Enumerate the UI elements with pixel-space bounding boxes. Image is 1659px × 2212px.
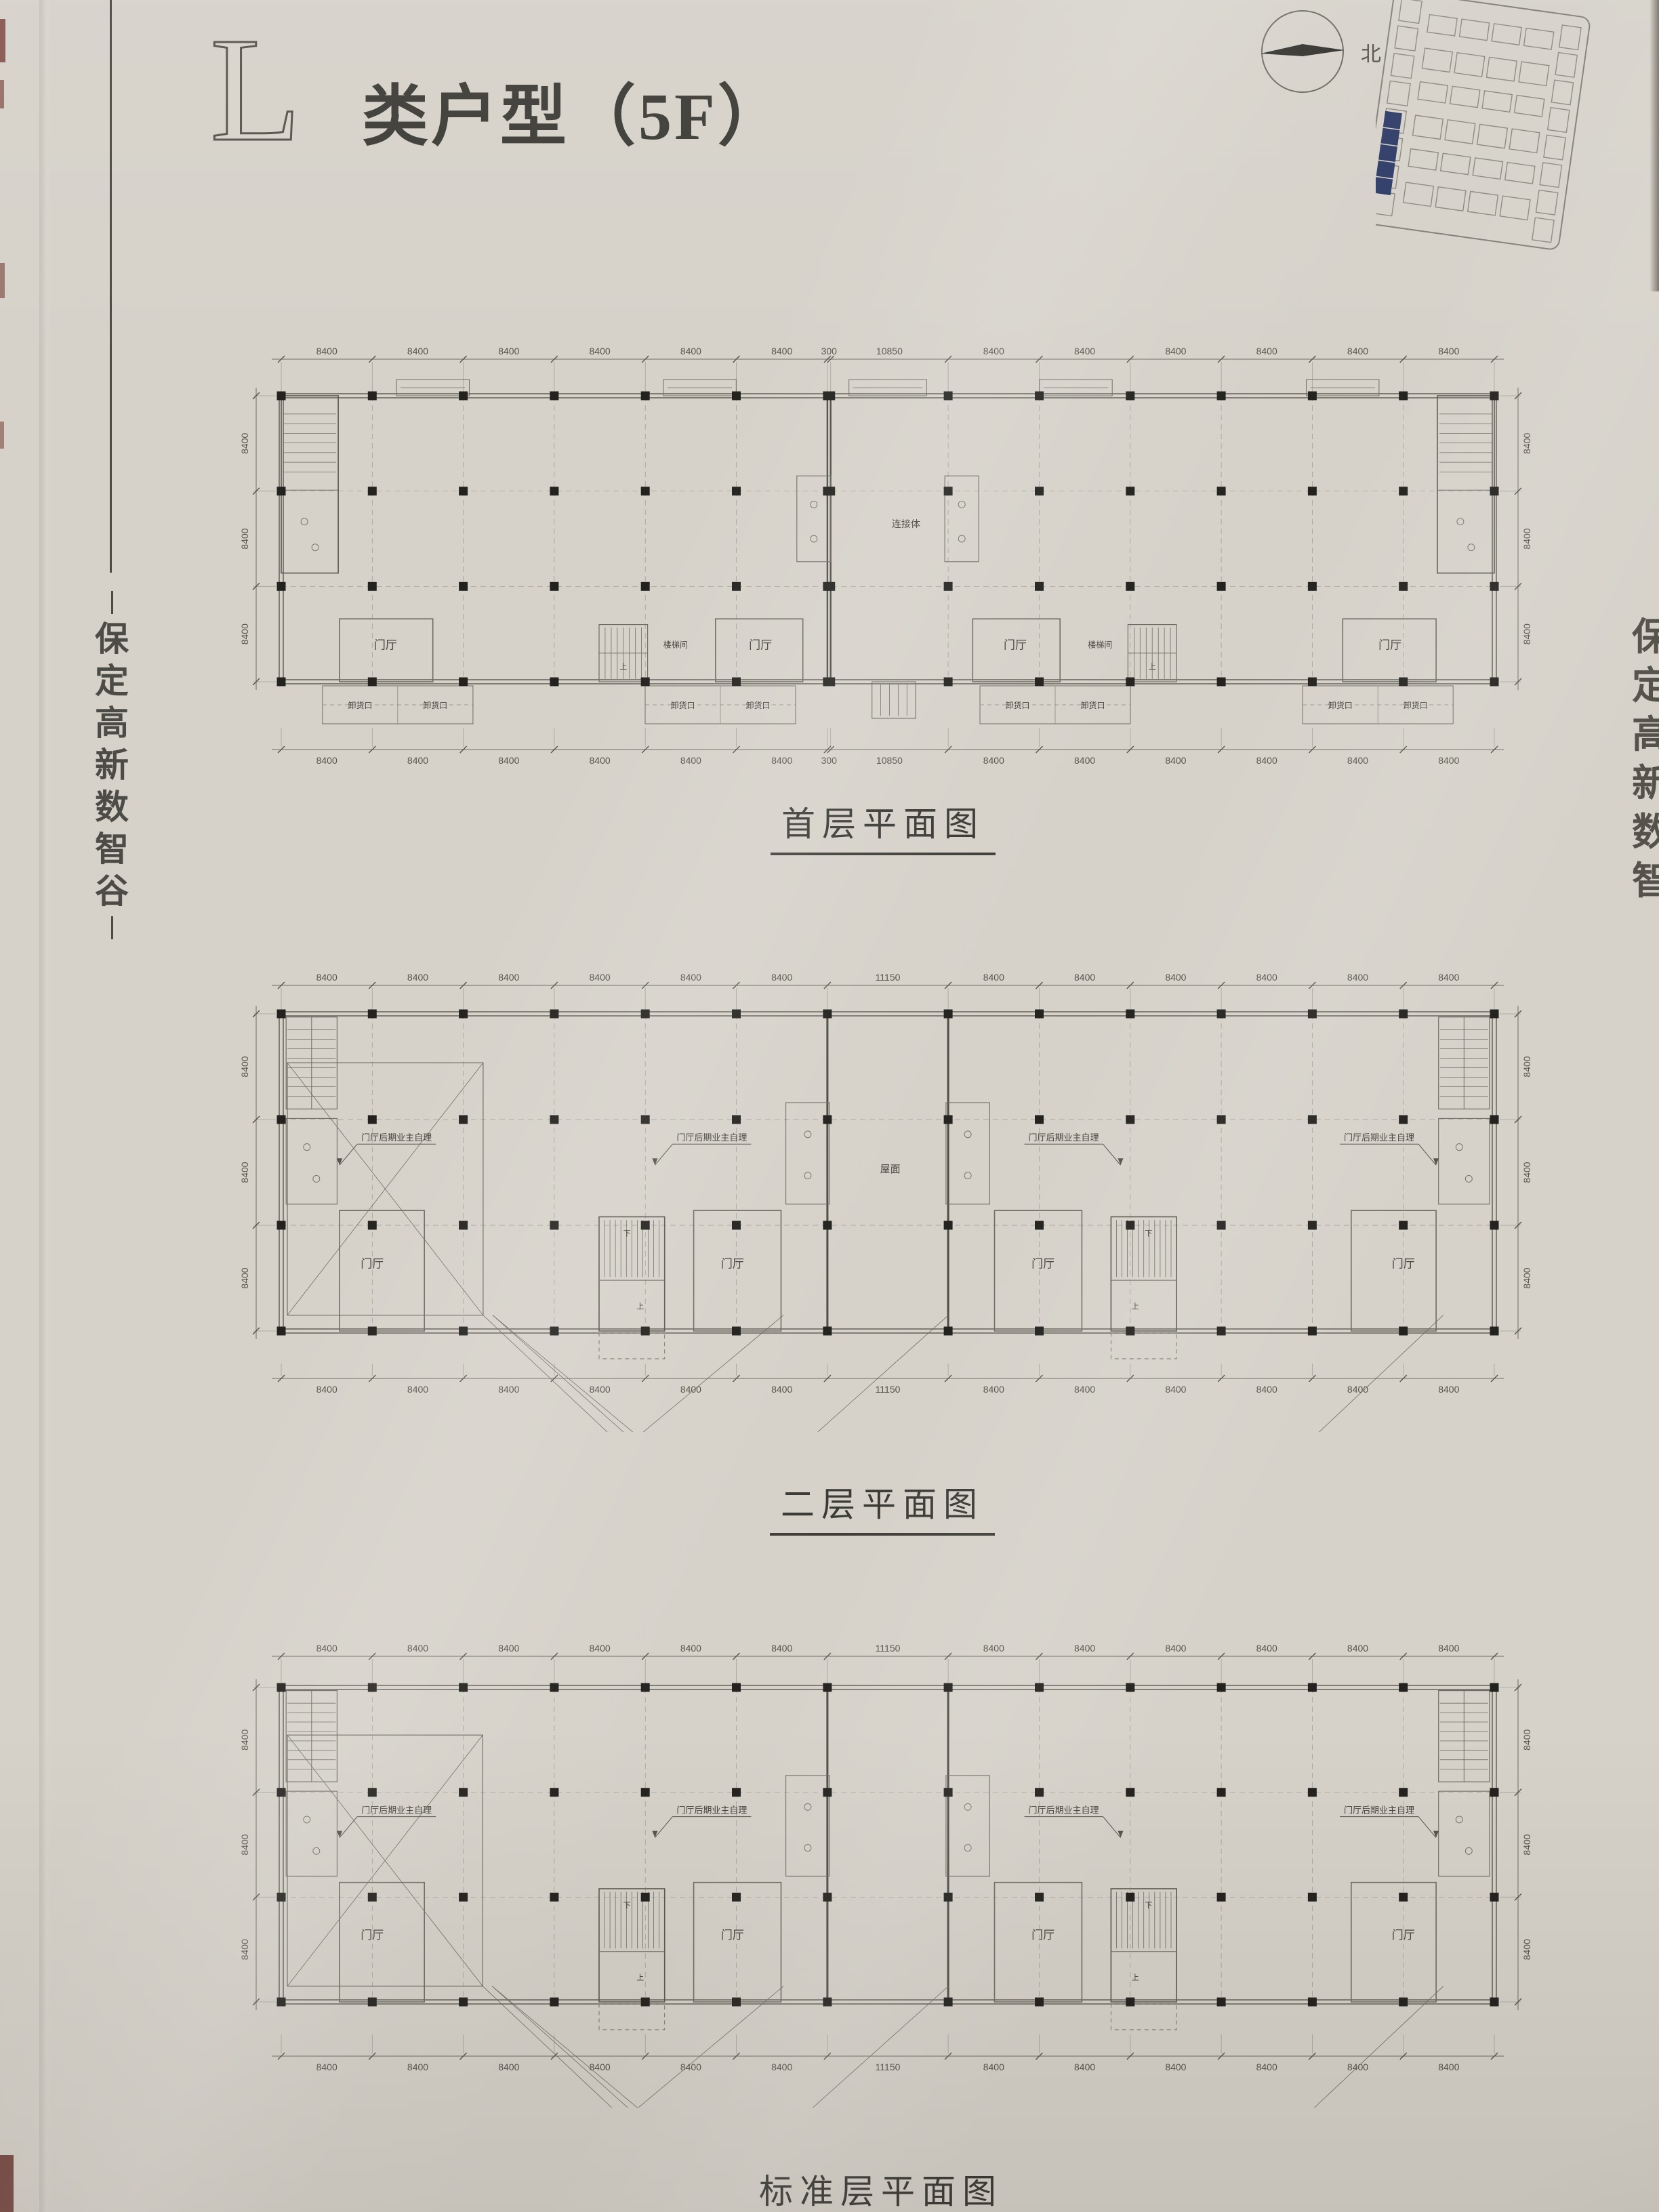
svg-text:8400: 8400: [771, 755, 792, 766]
svg-text:卸货口: 卸货口: [1328, 700, 1353, 710]
svg-text:门厅: 门厅: [1378, 639, 1401, 652]
svg-text:8400: 8400: [771, 346, 792, 356]
svg-text:11150: 11150: [876, 1384, 901, 1395]
page-edge-mark: [0, 19, 5, 62]
svg-text:8400: 8400: [680, 972, 701, 983]
svg-text:上: 上: [619, 662, 627, 671]
svg-text:8400: 8400: [983, 1384, 1004, 1395]
svg-text:8400: 8400: [316, 346, 337, 356]
svg-text:8400: 8400: [983, 972, 1004, 983]
page-edge-mark: [0, 422, 4, 449]
svg-text:8400: 8400: [498, 972, 519, 983]
svg-text:卸货口: 卸货口: [745, 700, 770, 710]
side-title-char: 谷: [95, 874, 129, 908]
svg-text:8400: 8400: [407, 2062, 428, 2072]
svg-text:300: 300: [821, 346, 838, 356]
svg-text:下: 下: [1145, 1230, 1152, 1238]
svg-text:8400: 8400: [1074, 972, 1095, 983]
svg-text:8400: 8400: [498, 2062, 519, 2072]
svg-text:8400: 8400: [1256, 346, 1277, 356]
side-title-tick: [111, 916, 113, 939]
title-letter: L: [203, 3, 363, 169]
svg-text:8400: 8400: [1438, 972, 1459, 983]
svg-text:8400: 8400: [316, 972, 337, 983]
svg-text:8400: 8400: [590, 1643, 611, 1654]
svg-text:11150: 11150: [876, 1643, 901, 1654]
svg-text:下: 下: [1145, 1902, 1152, 1910]
svg-text:8400: 8400: [680, 1643, 701, 1654]
dimension-lines: 8400840084008400840084001115084008400840…: [239, 1643, 1532, 2072]
svg-text:下: 下: [623, 1230, 631, 1238]
svg-text:8400: 8400: [1521, 433, 1532, 454]
svg-text:卸货口: 卸货口: [348, 700, 372, 710]
svg-text:8400: 8400: [1438, 346, 1459, 356]
svg-text:8400: 8400: [1074, 346, 1095, 356]
svg-text:8400: 8400: [239, 1939, 250, 1960]
svg-text:门厅: 门厅: [721, 1257, 744, 1270]
svg-text:8400: 8400: [407, 755, 428, 766]
svg-text:8400: 8400: [1165, 972, 1186, 983]
svg-text:8400: 8400: [316, 755, 337, 766]
svg-text:8400: 8400: [771, 1643, 792, 1654]
svg-text:8400: 8400: [239, 1267, 250, 1288]
plan-caption-second: 二层平面图: [770, 1477, 995, 1536]
svg-text:8400: 8400: [1521, 1267, 1532, 1288]
svg-text:8400: 8400: [1347, 346, 1368, 356]
dimension-extension-lines: [253, 1659, 1521, 2053]
svg-text:8400: 8400: [1521, 1056, 1532, 1077]
svg-text:连接体: 连接体: [892, 518, 920, 529]
side-title-char: 高: [95, 706, 129, 740]
svg-text:楼梯间: 楼梯间: [663, 639, 688, 649]
svg-text:门厅后期业主自理: 门厅后期业主自理: [1344, 1132, 1414, 1143]
paper-crease: [39, 0, 52, 2212]
page-title: 类户型（5F）: [362, 62, 787, 159]
svg-text:卸货口: 卸货口: [1080, 700, 1105, 710]
svg-text:8400: 8400: [1256, 2062, 1277, 2072]
svg-text:8400: 8400: [407, 1384, 428, 1395]
svg-text:8400: 8400: [983, 2062, 1004, 2072]
svg-text:门厅: 门厅: [1031, 1257, 1054, 1270]
svg-text:门厅后期业主自理: 门厅后期业主自理: [1028, 1132, 1099, 1143]
side-title-char: 数: [95, 790, 129, 824]
svg-text:卸货口: 卸货口: [423, 700, 447, 710]
svg-text:楼梯间: 楼梯间: [1088, 639, 1112, 649]
svg-text:上: 上: [1149, 662, 1156, 671]
side-title-right-text: 保定高新数智: [1632, 618, 1659, 900]
svg-text:8400: 8400: [239, 1834, 250, 1855]
svg-text:8400: 8400: [680, 1384, 701, 1395]
svg-text:8400: 8400: [1347, 755, 1368, 766]
svg-text:门厅: 门厅: [749, 639, 772, 652]
svg-text:8400: 8400: [590, 2062, 611, 2072]
side-title-char: 数: [1632, 813, 1659, 851]
svg-text:门厅: 门厅: [374, 639, 397, 652]
svg-text:8400: 8400: [771, 1384, 792, 1395]
side-title-left-text: 保定高新数智谷: [95, 622, 129, 908]
svg-text:8400: 8400: [680, 346, 701, 356]
svg-text:门厅: 门厅: [1392, 1929, 1415, 1942]
svg-text:8400: 8400: [239, 528, 250, 549]
svg-text:8400: 8400: [1256, 1643, 1277, 1654]
floor-plan-standard: 8400840084008400840084001115084008400840…: [224, 1626, 1552, 2108]
side-title-char: 定: [1632, 667, 1659, 705]
page-edge-mark: [0, 263, 5, 298]
svg-text:8400: 8400: [316, 1384, 337, 1395]
svg-text:8400: 8400: [1256, 972, 1277, 983]
dimension-extension-lines: [253, 988, 1521, 1376]
svg-text:8400: 8400: [1256, 755, 1277, 766]
sitemap-keyplan: [1376, 0, 1659, 258]
svg-text:8400: 8400: [1438, 1384, 1459, 1395]
side-title-left: 保定高新数智谷: [92, 591, 131, 939]
page-edge-mark: [0, 2155, 14, 2212]
svg-text:8400: 8400: [1438, 2062, 1459, 2072]
svg-text:8400: 8400: [239, 1056, 250, 1077]
svg-text:卸货口: 卸货口: [1005, 700, 1029, 710]
side-title-tick: [111, 591, 113, 614]
floor-plan-second: 8400840084008400840084001115084008400840…: [224, 954, 1552, 1432]
svg-text:8400: 8400: [1438, 755, 1459, 766]
svg-text:8400: 8400: [498, 1643, 519, 1654]
svg-text:8400: 8400: [1074, 755, 1095, 766]
svg-text:8400: 8400: [498, 755, 519, 766]
side-title-char: 新: [95, 748, 129, 782]
svg-text:8400: 8400: [590, 972, 611, 983]
svg-text:300: 300: [821, 755, 838, 766]
page-edge-mark: [0, 80, 4, 108]
svg-text:8400: 8400: [316, 1643, 337, 1654]
svg-text:8400: 8400: [680, 2062, 701, 2072]
svg-text:8400: 8400: [1074, 1643, 1095, 1654]
svg-text:上: 上: [1132, 1302, 1139, 1311]
svg-text:门厅后期业主自理: 门厅后期业主自理: [361, 1132, 432, 1143]
svg-text:8400: 8400: [1165, 346, 1186, 356]
svg-text:门厅后期业主自理: 门厅后期业主自理: [1344, 1805, 1414, 1816]
svg-text:8400: 8400: [498, 1384, 519, 1395]
side-title-char: 智: [95, 832, 129, 866]
svg-text:8400: 8400: [771, 2062, 792, 2072]
svg-text:8400: 8400: [1521, 623, 1532, 644]
svg-text:8400: 8400: [239, 623, 250, 644]
room-labels: 门厅楼梯间门厅连接体门厅楼梯间门厅上上: [277, 392, 1499, 687]
svg-text:门厅: 门厅: [361, 1257, 384, 1270]
svg-text:门厅后期业主自理: 门厅后期业主自理: [1028, 1805, 1099, 1816]
svg-text:8400: 8400: [1165, 1384, 1186, 1395]
svg-text:下: 下: [623, 1902, 631, 1910]
svg-text:门厅后期业主自理: 门厅后期业主自理: [676, 1805, 747, 1816]
svg-text:8400: 8400: [1165, 755, 1186, 766]
svg-text:8400: 8400: [983, 1643, 1004, 1654]
svg-text:8400: 8400: [590, 755, 611, 766]
svg-text:8400: 8400: [1165, 2062, 1186, 2072]
svg-text:门厅: 门厅: [1031, 1929, 1054, 1942]
building-outline: [279, 394, 1496, 684]
svg-text:8400: 8400: [1074, 1384, 1095, 1395]
svg-text:8400: 8400: [239, 1162, 250, 1183]
side-title-char: 高: [1632, 716, 1659, 754]
plan-caption-standard: 标准层平面图: [748, 2165, 1014, 2212]
svg-text:门厅: 门厅: [1392, 1257, 1415, 1270]
title-letter-glyph: L: [210, 7, 301, 169]
svg-text:8400: 8400: [239, 433, 250, 454]
svg-text:8400: 8400: [771, 972, 792, 983]
svg-text:8400: 8400: [407, 972, 428, 983]
svg-text:门厅后期业主自理: 门厅后期业主自理: [361, 1805, 432, 1816]
svg-text:10850: 10850: [876, 346, 903, 356]
side-title-char: 保: [95, 622, 129, 656]
svg-text:门厅后期业主自理: 门厅后期业主自理: [676, 1132, 747, 1143]
svg-text:8400: 8400: [498, 346, 519, 356]
svg-text:门厅: 门厅: [361, 1929, 384, 1942]
svg-text:8400: 8400: [1438, 1643, 1459, 1654]
svg-text:8400: 8400: [590, 346, 611, 356]
svg-text:8400: 8400: [1074, 2062, 1095, 2072]
building-outline: [279, 1685, 1496, 2004]
side-title-char: 保: [1632, 618, 1659, 656]
header-vertical-rule: [110, 0, 112, 573]
svg-text:8400: 8400: [1347, 1643, 1368, 1654]
svg-text:8400: 8400: [1521, 1162, 1532, 1183]
svg-text:8400: 8400: [407, 1643, 428, 1654]
floor-plan-ground: 8400840084008400840084003001085084008400…: [224, 333, 1552, 808]
svg-text:8400: 8400: [1165, 1643, 1186, 1654]
brochure-page-photo: L 类户型（5F） 北 保定高新数智谷 保定高新数智 8400840084008…: [0, 0, 1659, 2212]
svg-text:卸货口: 卸货口: [670, 700, 695, 710]
svg-text:8400: 8400: [1347, 972, 1368, 983]
svg-text:11150: 11150: [876, 2062, 901, 2072]
svg-text:上: 上: [636, 1302, 644, 1311]
svg-text:8400: 8400: [1521, 1729, 1532, 1750]
svg-text:屋面: 屋面: [880, 1164, 901, 1175]
side-title-char: 定: [95, 664, 129, 698]
side-title-char: 新: [1632, 764, 1659, 802]
svg-text:8400: 8400: [1521, 1834, 1532, 1855]
svg-text:8400: 8400: [1347, 1384, 1368, 1395]
dimension-extension-lines: [253, 362, 1521, 747]
room-labels: 门厅门厅门厅门厅下上下上门厅后期业主自理门厅后期业主自理门厅后期业主自理门厅后期…: [277, 1683, 1499, 2007]
svg-text:上: 上: [1132, 1973, 1139, 1982]
svg-text:8400: 8400: [590, 1384, 611, 1395]
plan-caption-ground: 首层平面图: [771, 797, 996, 855]
svg-text:门厅: 门厅: [1004, 639, 1027, 652]
dimension-lines: 8400840084008400840084001115084008400840…: [239, 972, 1532, 1395]
svg-text:8400: 8400: [407, 346, 428, 356]
svg-text:上: 上: [636, 1973, 644, 1982]
svg-text:8400: 8400: [680, 755, 701, 766]
side-title-char: 智: [1632, 862, 1659, 900]
svg-text:卸货口: 卸货口: [1404, 700, 1428, 710]
svg-text:10850: 10850: [876, 755, 903, 766]
svg-text:8400: 8400: [1256, 1384, 1277, 1395]
svg-text:8400: 8400: [1521, 528, 1532, 549]
svg-text:8400: 8400: [983, 346, 1004, 356]
structural-grid: [281, 396, 1494, 682]
svg-text:门厅: 门厅: [721, 1929, 744, 1942]
svg-text:8400: 8400: [239, 1729, 250, 1750]
svg-text:8400: 8400: [1521, 1939, 1532, 1960]
svg-text:8400: 8400: [316, 2062, 337, 2072]
svg-text:8400: 8400: [983, 755, 1004, 766]
svg-text:11150: 11150: [876, 972, 901, 983]
room-labels: 门厅门厅屋面门厅门厅下上下上门厅后期业主自理门厅后期业主自理门厅后期业主自理门厅…: [277, 1010, 1499, 1336]
